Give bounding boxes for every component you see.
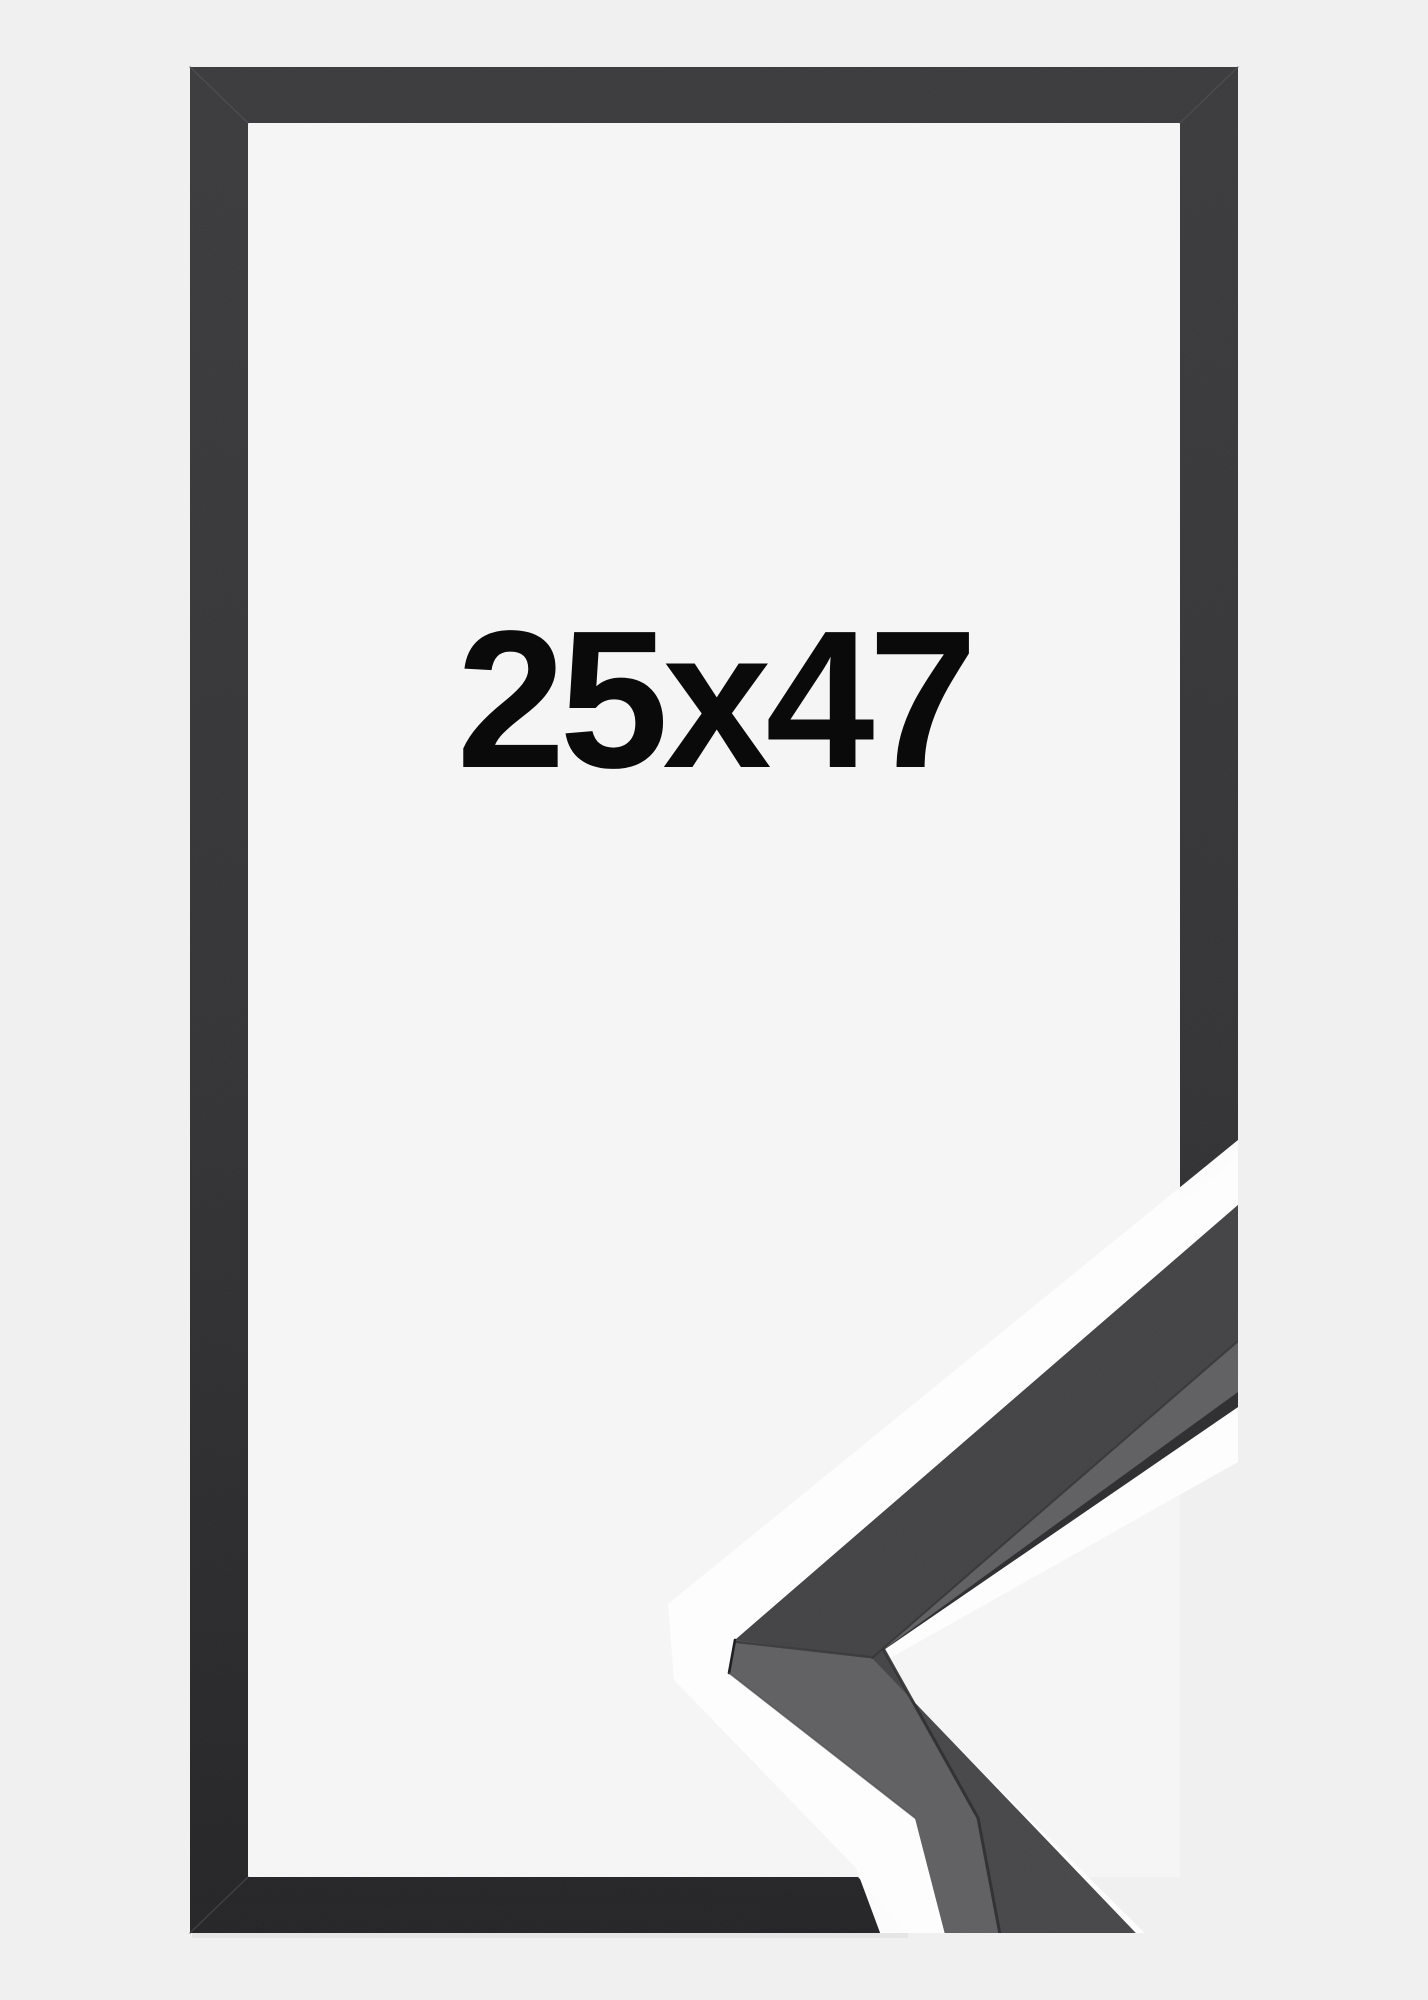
- product-image: 25x47: [0, 0, 1428, 2000]
- frame-shadow: [192, 1933, 908, 1938]
- frame-product-photo: 25x47: [0, 0, 1428, 2000]
- size-label: 25x47: [456, 590, 971, 809]
